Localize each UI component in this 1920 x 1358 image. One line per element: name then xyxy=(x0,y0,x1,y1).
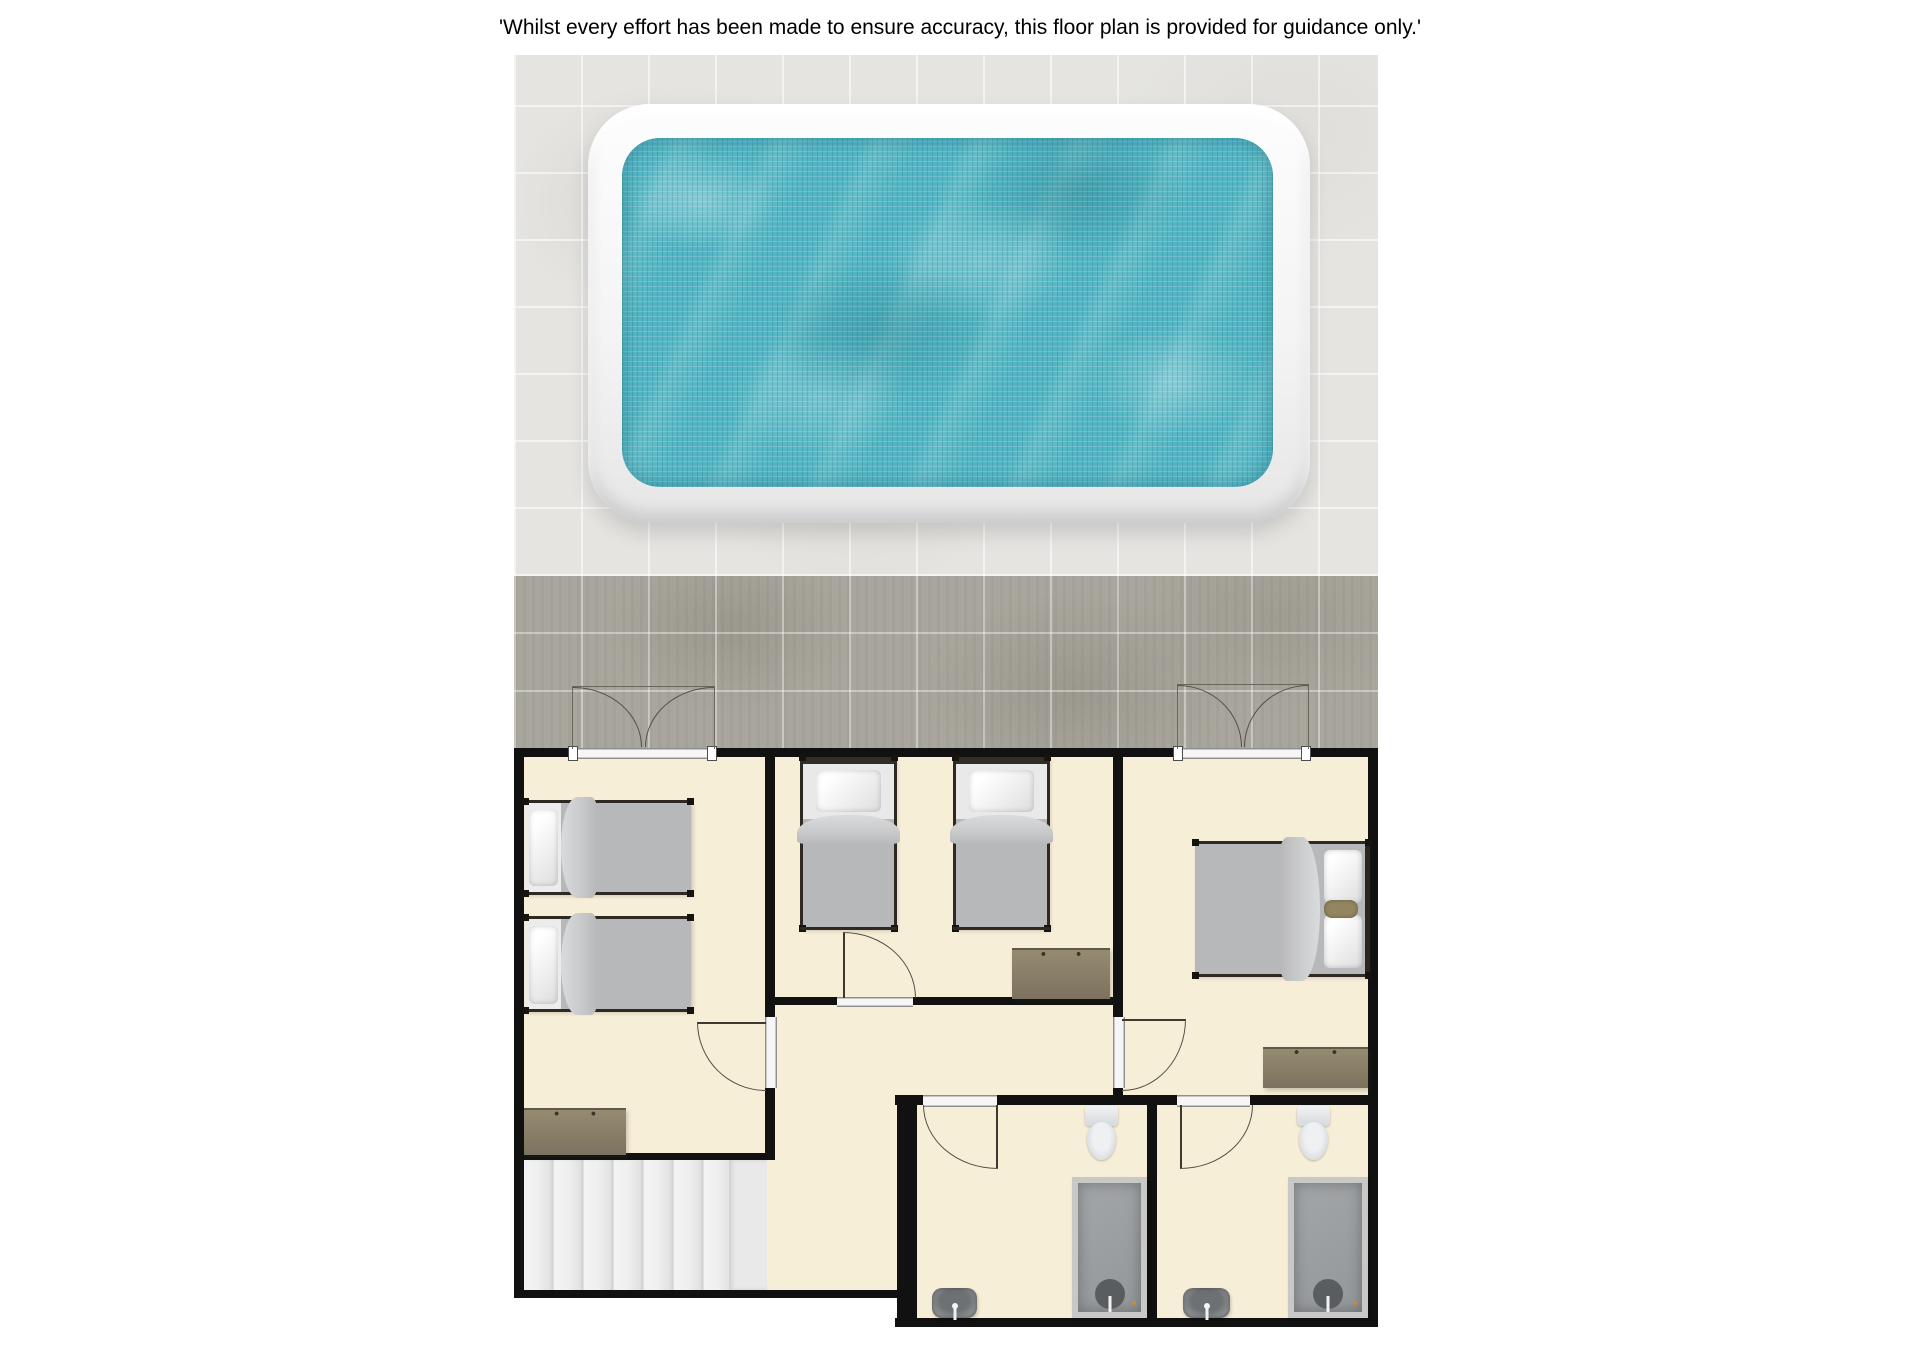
pillow xyxy=(1324,915,1362,968)
staircase xyxy=(524,1160,767,1290)
twin-bed xyxy=(802,757,895,928)
floor-plan xyxy=(514,748,1378,1340)
pillow xyxy=(816,770,881,812)
sink-faucet-head xyxy=(952,1303,958,1309)
wall xyxy=(765,997,837,1005)
pillow xyxy=(1324,850,1362,903)
twin-bed xyxy=(525,802,691,893)
sink xyxy=(932,1288,977,1318)
wall xyxy=(713,748,1177,757)
accent-cushion xyxy=(1324,900,1358,918)
blanket-fold xyxy=(950,815,1053,845)
door-sill xyxy=(765,1017,777,1088)
swimming-pool xyxy=(622,138,1273,487)
twin-bed xyxy=(525,918,691,1010)
shower-control xyxy=(1132,1301,1136,1305)
pillow xyxy=(529,926,558,1004)
blanket-fold xyxy=(797,815,900,845)
wall xyxy=(897,1097,917,1327)
shower-handle xyxy=(1327,1296,1330,1312)
wall xyxy=(765,757,775,1017)
wall xyxy=(514,748,524,1298)
double-bed xyxy=(1195,843,1368,975)
pool-terrace xyxy=(514,55,1378,750)
stair-landing xyxy=(729,1160,767,1290)
shower-handle xyxy=(1108,1296,1111,1312)
door-sill xyxy=(837,997,913,1007)
disclaimer-text: 'Whilst every effort has been made to en… xyxy=(0,16,1920,40)
wall xyxy=(1113,757,1123,1017)
twin-bed xyxy=(955,757,1048,928)
french-doors-left xyxy=(572,686,715,749)
french-doors-right xyxy=(1177,684,1309,749)
blanket-fold xyxy=(561,913,597,1015)
wall xyxy=(514,1290,899,1298)
toilet-bowl xyxy=(1299,1122,1328,1160)
hallway-branch xyxy=(775,1005,899,1160)
floor-plan-page: 'Whilst every effort has been made to en… xyxy=(0,0,1920,1358)
sink xyxy=(1183,1288,1230,1318)
wall xyxy=(1368,748,1378,1327)
sink-faucet-head xyxy=(1204,1303,1210,1309)
toilet xyxy=(1297,1106,1330,1160)
wall xyxy=(895,1318,1378,1327)
wall xyxy=(765,1088,775,1160)
shower xyxy=(1072,1177,1147,1318)
pillow xyxy=(969,770,1034,812)
pool-surround xyxy=(588,104,1310,523)
toilet xyxy=(1085,1106,1118,1160)
blanket-fold xyxy=(1280,837,1320,981)
dresser xyxy=(1012,948,1110,999)
door-sill xyxy=(572,748,713,759)
door-sill xyxy=(1177,748,1307,759)
blanket-fold xyxy=(561,797,597,898)
dresser xyxy=(1263,1047,1368,1088)
shower xyxy=(1288,1177,1368,1318)
wall xyxy=(1147,1105,1157,1318)
toilet-bowl xyxy=(1087,1122,1116,1160)
dresser xyxy=(524,1108,626,1155)
wall xyxy=(997,1095,1177,1105)
pillow xyxy=(529,809,558,886)
shower-control xyxy=(1353,1301,1357,1305)
wall xyxy=(1250,1095,1378,1105)
hallway-landing xyxy=(767,1160,899,1290)
